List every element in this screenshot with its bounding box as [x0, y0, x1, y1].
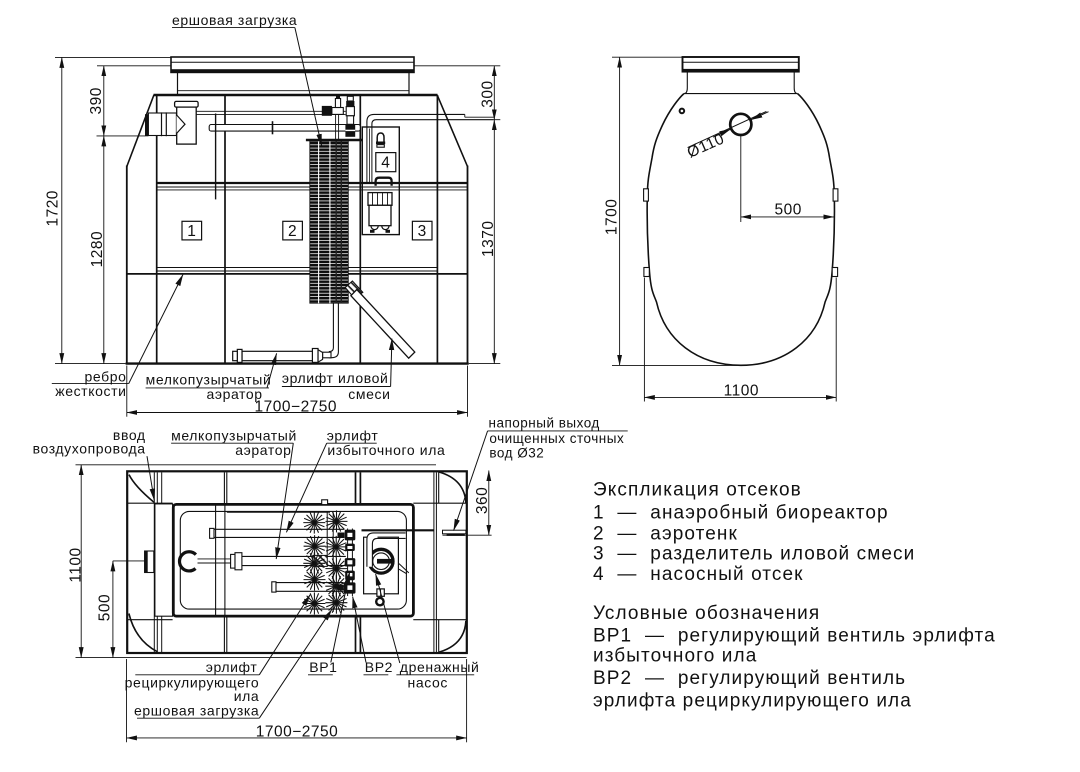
svg-text:насос: насос: [408, 674, 448, 690]
svg-text:смеси: смеси: [348, 386, 390, 402]
svg-text:1720: 1720: [45, 190, 62, 226]
svg-text:1100: 1100: [724, 382, 759, 399]
svg-text:ВР2: ВР2: [365, 659, 393, 675]
svg-text:1370: 1370: [480, 220, 497, 256]
svg-text:избыточного ила: избыточного ила: [593, 645, 757, 666]
svg-text:360: 360: [474, 487, 491, 514]
svg-text:мелкопузырчатый: мелкопузырчатый: [171, 427, 297, 443]
svg-text:эрлифт: эрлифт: [327, 427, 379, 443]
svg-text:4 — насосный отсек: 4 — насосный отсек: [593, 564, 804, 585]
svg-text:ребро: ребро: [84, 369, 126, 385]
svg-text:2 — аэротенк: 2 — аэротенк: [593, 524, 738, 545]
svg-text:1700−2750: 1700−2750: [256, 724, 339, 741]
svg-text:жесткости: жесткости: [55, 383, 126, 399]
svg-text:ВР1 — регулирующий вентиль э: ВР1 — регулирующий вентиль эрлифта: [593, 625, 996, 646]
svg-text:300: 300: [480, 80, 497, 107]
svg-text:500: 500: [96, 594, 113, 621]
svg-text:очищенных сточных: очищенных сточных: [489, 431, 624, 446]
svg-text:напорный выход: напорный выход: [489, 416, 600, 431]
svg-text:1700: 1700: [603, 199, 620, 235]
svg-text:Ø110: Ø110: [685, 130, 727, 161]
svg-text:Условные обозначения: Условные обозначения: [593, 603, 820, 624]
svg-text:вод Ø32: вод Ø32: [489, 445, 544, 460]
svg-text:3 — разделитель иловой смеси: 3 — разделитель иловой смеси: [593, 544, 915, 565]
svg-text:1: 1: [187, 223, 196, 240]
svg-text:500: 500: [775, 201, 802, 218]
svg-text:эрлифт: эрлифт: [206, 659, 258, 675]
svg-text:3: 3: [418, 223, 427, 240]
svg-text:2: 2: [288, 223, 297, 240]
svg-text:ершовая загрузка: ершовая загрузка: [134, 702, 259, 718]
svg-text:избыточного ила: избыточного ила: [327, 442, 445, 458]
svg-text:эрлифт иловой: эрлифт иловой: [282, 370, 389, 386]
svg-text:1280: 1280: [89, 231, 106, 267]
svg-text:ВР1: ВР1: [309, 659, 337, 675]
svg-text:4: 4: [381, 155, 390, 172]
svg-text:аэратор: аэратор: [235, 442, 291, 458]
svg-text:1 — анаэробный биореактор: 1 — анаэробный биореактор: [593, 503, 889, 524]
svg-text:ВР2 — регулирующий вентиль: ВР2 — регулирующий вентиль: [593, 668, 906, 689]
svg-text:дренажный: дренажный: [400, 659, 480, 675]
svg-text:эрлифта рециркулирующего ила: эрлифта рециркулирующего ила: [593, 690, 912, 711]
svg-text:Экспликация отсеков: Экспликация отсеков: [593, 480, 802, 501]
svg-text:воздухопровода: воздухопровода: [33, 441, 146, 457]
svg-text:ершовая загрузка: ершовая загрузка: [172, 12, 297, 28]
svg-text:390: 390: [88, 87, 105, 114]
svg-text:1100: 1100: [67, 547, 84, 582]
svg-text:1700−2750: 1700−2750: [255, 398, 338, 415]
